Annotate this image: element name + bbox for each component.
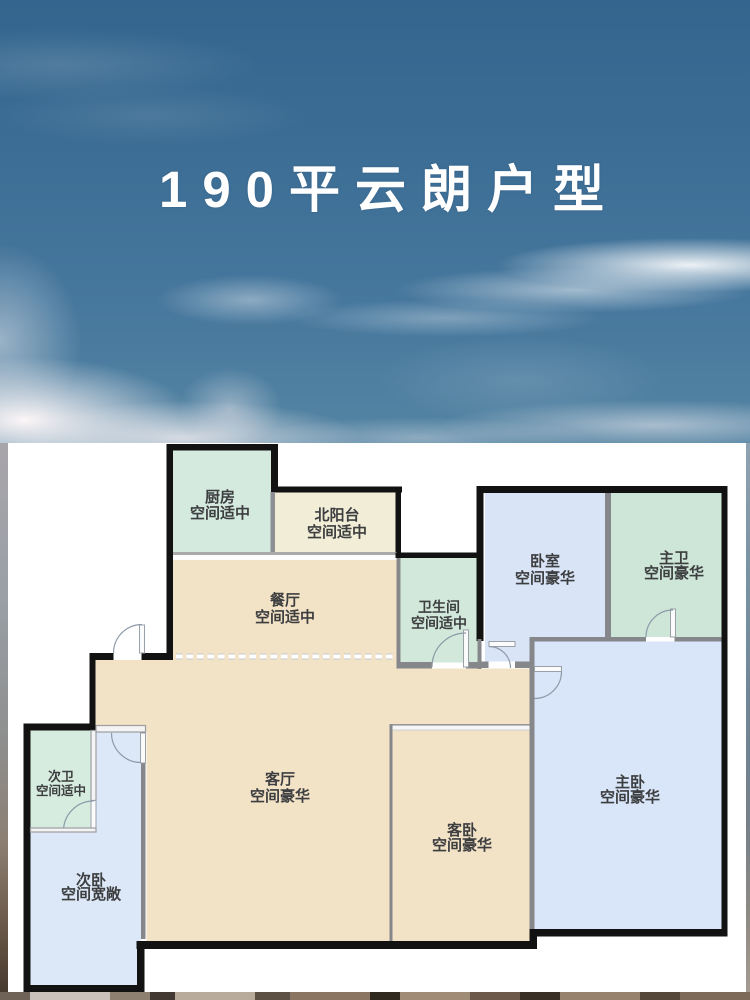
svg-text:卧室: 卧室 xyxy=(530,552,560,570)
svg-text:空间豪华: 空间豪华 xyxy=(250,787,310,805)
svg-text:空间豪华: 空间豪华 xyxy=(432,836,492,854)
svg-text:餐厅: 餐厅 xyxy=(270,591,300,609)
svg-text:次卫: 次卫 xyxy=(48,769,74,784)
svg-text:空间豪华: 空间豪华 xyxy=(644,564,704,582)
svg-text:空间豪华: 空间豪华 xyxy=(600,788,660,806)
svg-text:空间适中: 空间适中 xyxy=(255,608,315,626)
svg-text:厨房: 厨房 xyxy=(205,488,235,506)
svg-text:空间适中: 空间适中 xyxy=(307,523,367,541)
svg-text:空间适中: 空间适中 xyxy=(190,504,250,522)
svg-text:空间适中: 空间适中 xyxy=(411,615,467,631)
svg-text:北阳台: 北阳台 xyxy=(314,506,359,524)
svg-text:客厅: 客厅 xyxy=(264,770,295,788)
svg-text:空间适中: 空间适中 xyxy=(36,783,86,798)
svg-text:空间宽敞: 空间宽敞 xyxy=(61,885,122,903)
svg-text:卫生间: 卫生间 xyxy=(418,599,460,615)
svg-text:空间豪华: 空间豪华 xyxy=(515,569,575,587)
